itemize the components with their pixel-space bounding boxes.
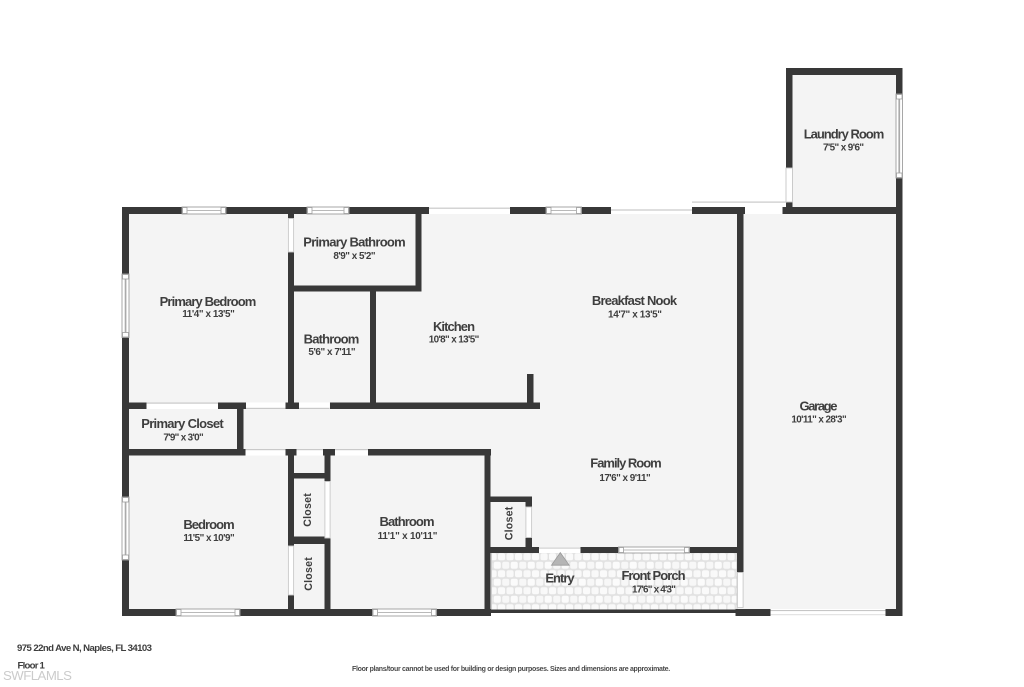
svg-text:Entry: Entry: [545, 570, 575, 585]
svg-text:Breakfast Nook: Breakfast Nook: [592, 293, 678, 308]
svg-text:Closet: Closet: [504, 506, 516, 540]
svg-text:11'4" x 13'5": 11'4" x 13'5": [182, 309, 235, 320]
svg-text:11'1" x 10'11": 11'1" x 10'11": [378, 531, 438, 542]
svg-text:Family Room: Family Room: [590, 456, 661, 471]
svg-text:Bathroom: Bathroom: [380, 514, 435, 529]
svg-text:11'5" x 10'9": 11'5" x 10'9": [183, 533, 235, 544]
svg-text:17'6" x 9'11": 17'6" x 9'11": [599, 473, 651, 484]
svg-text:Closet: Closet: [302, 493, 314, 527]
svg-text:5'6" x 7'11": 5'6" x 7'11": [308, 347, 356, 358]
svg-text:17'6" x 4'3": 17'6" x 4'3": [632, 584, 676, 595]
svg-text:Garage: Garage: [800, 399, 838, 414]
svg-text:Bedroom: Bedroom: [183, 517, 234, 532]
svg-text:Front Porch: Front Porch: [621, 568, 685, 583]
svg-text:Closet: Closet: [303, 557, 315, 591]
svg-text:Primary Bedroom: Primary Bedroom: [160, 294, 257, 309]
svg-text:Primary Closet: Primary Closet: [141, 416, 224, 431]
svg-text:Floor plans/tour cannot be use: Floor plans/tour cannot be used for buil…: [352, 666, 670, 673]
svg-text:975 22nd Ave N, Naples, FL 341: 975 22nd Ave N, Naples, FL 34103: [17, 643, 152, 654]
svg-text:14'7" x 13'5": 14'7" x 13'5": [608, 309, 662, 320]
svg-text:SWFLAMLS: SWFLAMLS: [3, 668, 72, 682]
svg-text:Bathroom: Bathroom: [304, 332, 360, 347]
svg-text:Kitchen: Kitchen: [433, 319, 475, 334]
svg-text:7'5" x 9'6": 7'5" x 9'6": [823, 142, 864, 153]
svg-text:8'9" x 5'2": 8'9" x 5'2": [333, 251, 376, 262]
svg-text:10'11" x 28'3": 10'11" x 28'3": [791, 414, 847, 425]
svg-text:Laundry Room: Laundry Room: [804, 127, 885, 142]
svg-text:10'8" x 13'5": 10'8" x 13'5": [429, 334, 480, 345]
svg-text:Primary Bathroom: Primary Bathroom: [303, 235, 405, 250]
svg-text:7'9" x 3'0": 7'9" x 3'0": [163, 432, 204, 443]
